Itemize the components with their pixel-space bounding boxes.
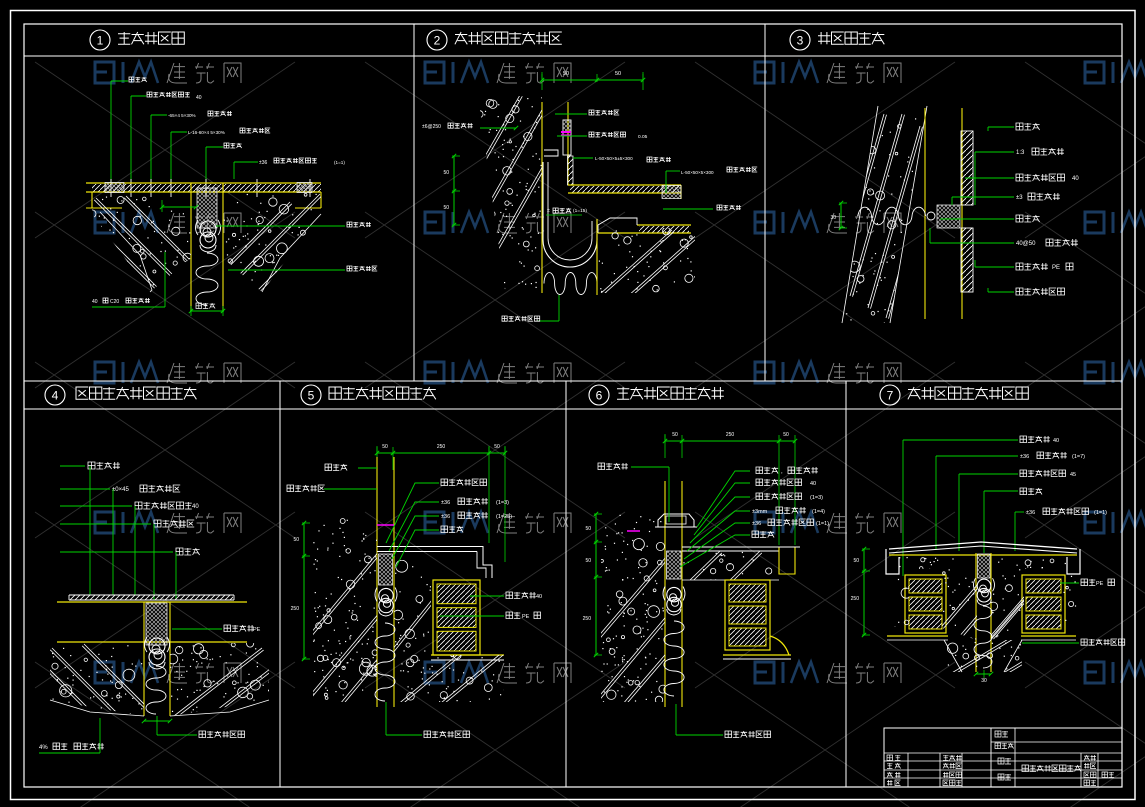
svg-text:(1=3): (1=3): [496, 500, 509, 506]
svg-text:4: 4: [52, 389, 59, 403]
svg-text:(1=1): (1=1): [1094, 510, 1107, 516]
svg-text:±0×45: ±0×45: [112, 487, 129, 493]
svg-text:PE: PE: [1052, 265, 1060, 271]
svg-text:40: 40: [192, 504, 199, 510]
svg-text:5: 5: [308, 389, 315, 403]
svg-text:3: 3: [797, 34, 804, 48]
svg-text:40: 40: [810, 481, 816, 487]
svg-text:±36: ±36: [1020, 454, 1029, 460]
svg-text:50: 50: [293, 537, 299, 543]
svg-text:±36: ±36: [1026, 510, 1035, 516]
svg-text:40: 40: [92, 299, 98, 305]
svg-text:±3: ±3: [1016, 195, 1023, 201]
svg-text:PE: PE: [1096, 581, 1104, 587]
svg-text:(1=15): (1=15): [573, 208, 587, 214]
svg-text:-65×4 5×30%: -65×4 5×30%: [168, 113, 196, 118]
svg-text:4%: 4%: [39, 745, 48, 751]
svg-text:40: 40: [1053, 438, 1059, 444]
svg-text:±: ±: [547, 208, 550, 214]
svg-text:50: 50: [615, 71, 621, 77]
svg-text:±3mm: ±3mm: [752, 509, 768, 515]
svg-text:50: 50: [494, 444, 500, 450]
svg-text:45: 45: [1070, 472, 1076, 478]
svg-text:6: 6: [596, 389, 603, 403]
svg-text:1: 1: [97, 34, 104, 48]
svg-text:±36: ±36: [259, 160, 268, 166]
svg-text:C20: C20: [110, 299, 119, 305]
svg-text:L-16-60×4 5×30%: L-16-60×4 5×30%: [188, 130, 225, 135]
svg-text:50: 50: [443, 205, 449, 211]
svg-text:±6@250: ±6@250: [422, 124, 441, 130]
svg-text:250: 250: [726, 432, 735, 438]
svg-text:30: 30: [830, 215, 836, 221]
svg-text:L-50×50×5×300: L-50×50×5×300: [681, 170, 714, 175]
svg-text:50: 50: [382, 444, 388, 450]
svg-text:(1=1): (1=1): [816, 521, 829, 527]
svg-text:±36: ±36: [441, 500, 450, 506]
svg-text:(1=1): (1=1): [334, 160, 345, 165]
svg-text:50: 50: [585, 526, 591, 532]
svg-text:50: 50: [853, 558, 859, 564]
svg-text:PE: PE: [522, 614, 530, 620]
svg-text:(1=4): (1=4): [812, 509, 825, 515]
svg-text:250: 250: [851, 596, 860, 602]
svg-text:40: 40: [1072, 176, 1079, 182]
svg-text:40: 40: [536, 594, 542, 600]
svg-text:L-50×50×5±5×300: L-50×50×5±5×300: [595, 156, 633, 161]
svg-text:0.05: 0.05: [638, 134, 648, 140]
svg-text:250: 250: [437, 444, 446, 450]
svg-text:50: 50: [585, 558, 591, 564]
svg-text:±36: ±36: [752, 521, 761, 527]
svg-text:250: 250: [583, 616, 592, 622]
svg-text:2: 2: [434, 34, 441, 48]
svg-text:250: 250: [291, 606, 300, 612]
svg-text:7: 7: [887, 389, 894, 403]
svg-text:50: 50: [563, 71, 569, 77]
svg-text:50: 50: [783, 432, 789, 438]
svg-text:50: 50: [672, 432, 678, 438]
svg-text:50: 50: [443, 170, 449, 176]
svg-text:(1=25): (1=25): [496, 514, 512, 520]
svg-text:PE: PE: [253, 627, 261, 633]
svg-text:40@50: 40@50: [1016, 241, 1036, 247]
svg-text:30: 30: [981, 678, 987, 684]
svg-text:1:3: 1:3: [1016, 150, 1025, 156]
svg-text:±36: ±36: [441, 514, 450, 520]
svg-text:40: 40: [196, 95, 202, 101]
svg-text:(1=3): (1=3): [810, 495, 823, 501]
svg-text:(1=7): (1=7): [1072, 454, 1085, 460]
